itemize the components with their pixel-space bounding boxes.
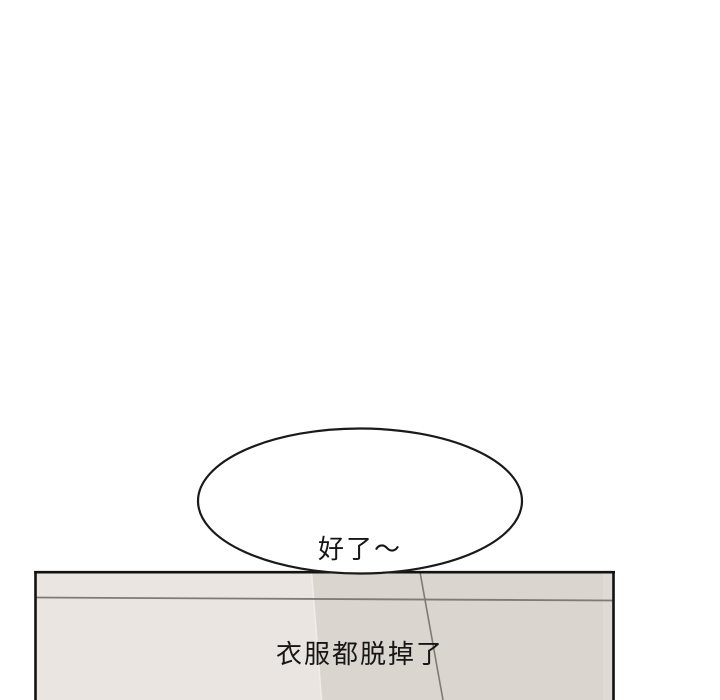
speech-line-2: 衣服都脱掉了 [0,637,720,672]
speech-bubble-text: 好了～ 衣服都脱掉了 [0,462,720,700]
comic-page: 好了～ 衣服都脱掉了 [0,0,720,700]
speech-line-1: 好了～ [0,532,720,567]
